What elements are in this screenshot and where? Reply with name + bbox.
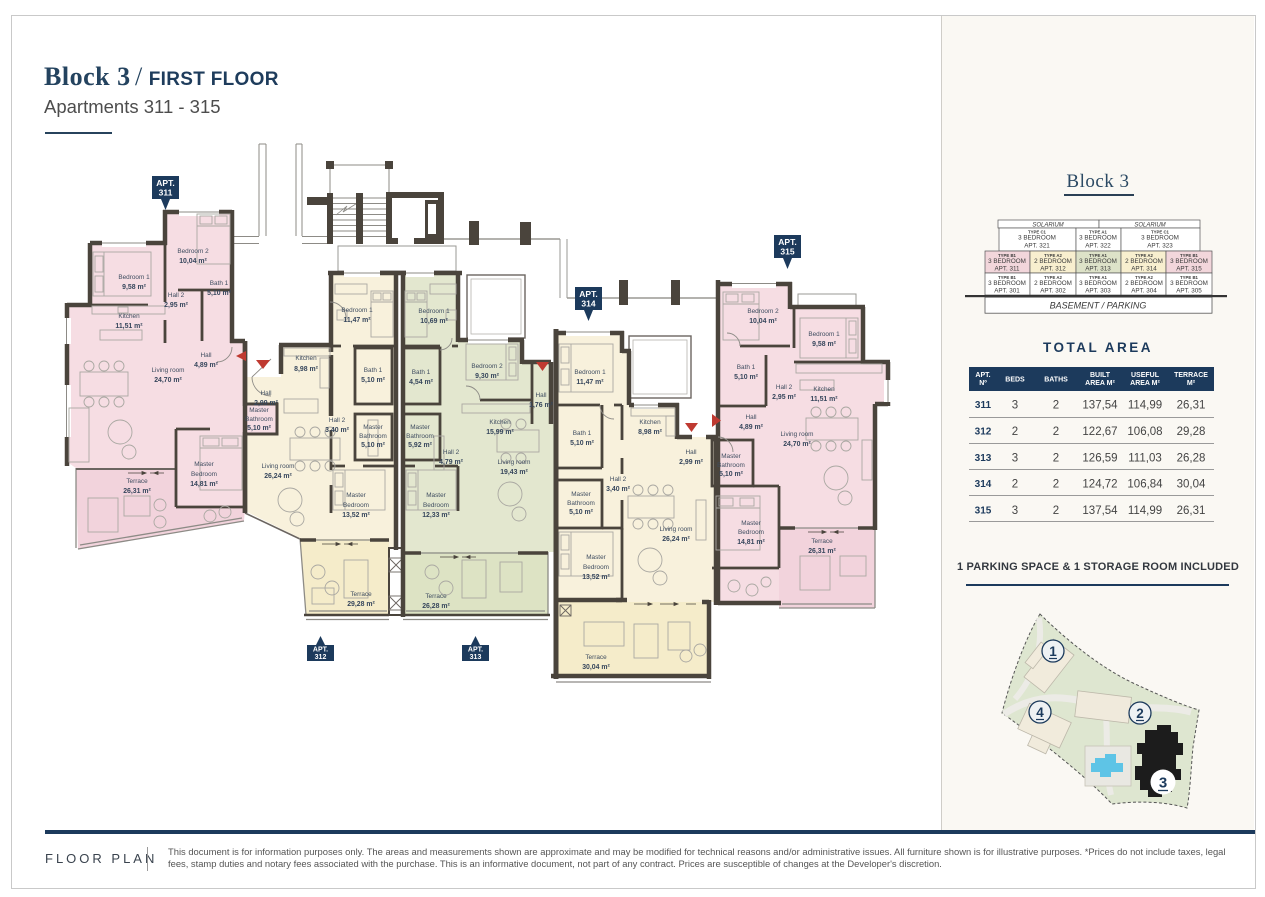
- svg-text:1,76 m²: 1,76 m²: [529, 402, 553, 409]
- svg-text:9,58 m²: 9,58 m²: [812, 341, 836, 348]
- svg-text:2 BEDROOM: 2 BEDROOM: [1034, 280, 1072, 287]
- svg-text:Living room: Living room: [261, 463, 294, 470]
- svg-text:3: 3: [1012, 400, 1018, 412]
- svg-text:TYPE B1: TYPE B1: [998, 253, 1017, 258]
- svg-text:4,79 m²: 4,79 m²: [439, 459, 463, 466]
- svg-text:3,40 m²: 3,40 m²: [325, 427, 349, 434]
- svg-text:APT. 305: APT. 305: [1176, 288, 1202, 295]
- svg-text:Hall 2: Hall 2: [776, 384, 793, 391]
- svg-text:Terrace: Terrace: [811, 538, 833, 545]
- svg-text:114,99: 114,99: [1128, 505, 1162, 517]
- svg-text:SOLARIUM: SOLARIUM: [1032, 223, 1063, 229]
- svg-text:8,98 m²: 8,98 m²: [294, 366, 318, 373]
- svg-text:TYPE B1: TYPE B1: [998, 275, 1017, 280]
- svg-text:Bathroom: Bathroom: [359, 433, 387, 440]
- svg-text:APT. 322: APT. 322: [1085, 243, 1111, 250]
- svg-text:26,31 m²: 26,31 m²: [808, 548, 836, 555]
- svg-text:2 BEDROOM: 2 BEDROOM: [1125, 258, 1163, 265]
- svg-text:Living room: Living room: [497, 459, 530, 466]
- svg-text:26,31 m²: 26,31 m²: [123, 488, 151, 495]
- svg-text:Master: Master: [721, 453, 741, 460]
- svg-text:4: 4: [1036, 705, 1044, 720]
- svg-text:TERRACE: TERRACE: [1174, 372, 1208, 379]
- svg-text:5,10 m²: 5,10 m²: [570, 440, 594, 447]
- svg-text:137,54: 137,54: [1082, 505, 1118, 517]
- svg-text:Bedroom: Bedroom: [423, 502, 449, 509]
- svg-text:11,47 m²: 11,47 m²: [343, 317, 371, 324]
- svg-text:2,99 m²: 2,99 m²: [679, 459, 703, 466]
- svg-text:Master: Master: [249, 407, 269, 414]
- svg-text:Living room: Living room: [780, 431, 813, 438]
- svg-text:APT.: APT.: [156, 178, 174, 188]
- svg-text:9,58 m²: 9,58 m²: [122, 284, 146, 291]
- svg-text:APT. 323: APT. 323: [1147, 243, 1173, 250]
- svg-text:8,98 m²: 8,98 m²: [638, 429, 662, 436]
- svg-text:5,92 m²: 5,92 m²: [408, 442, 432, 449]
- svg-text:15,99 m²: 15,99 m²: [486, 429, 514, 436]
- svg-text:APT.: APT.: [778, 237, 796, 247]
- svg-text:M²: M²: [1187, 380, 1196, 387]
- svg-text:Bedroom 1: Bedroom 1: [418, 308, 450, 315]
- svg-text:APT. 302: APT. 302: [1040, 288, 1066, 295]
- svg-text:2: 2: [1053, 426, 1059, 438]
- svg-text:Terrace: Terrace: [126, 478, 148, 485]
- svg-text:Bedroom 2: Bedroom 2: [471, 363, 503, 370]
- svg-text:3 BEDROOM: 3 BEDROOM: [1079, 235, 1117, 242]
- svg-text:Hall 2: Hall 2: [329, 417, 346, 424]
- svg-text:30,04 m²: 30,04 m²: [582, 664, 610, 671]
- svg-text:APT. 303: APT. 303: [1085, 288, 1111, 295]
- svg-text:30,04: 30,04: [1177, 479, 1206, 491]
- svg-text:2: 2: [1012, 479, 1018, 491]
- svg-text:106,84: 106,84: [1127, 479, 1163, 491]
- svg-text:Bath 1: Bath 1: [737, 364, 756, 371]
- svg-text:26,31: 26,31: [1177, 505, 1206, 517]
- svg-text:APT. 313: APT. 313: [1085, 266, 1111, 273]
- svg-text:TYPE A2: TYPE A2: [1044, 275, 1062, 280]
- svg-text:TYPE A2: TYPE A2: [1135, 253, 1153, 258]
- svg-text:3: 3: [1159, 775, 1167, 792]
- svg-text:BASEMENT / PARKING: BASEMENT / PARKING: [1050, 301, 1147, 311]
- svg-text:26,28: 26,28: [1177, 453, 1206, 465]
- svg-text:2: 2: [1053, 453, 1059, 465]
- svg-text:Bedroom 1: Bedroom 1: [574, 369, 606, 376]
- svg-text:Kitchen: Kitchen: [813, 386, 835, 393]
- svg-text:13,52 m²: 13,52 m²: [342, 512, 370, 519]
- svg-text:Terrace: Terrace: [350, 591, 372, 598]
- svg-text:10,04 m²: 10,04 m²: [749, 318, 777, 325]
- svg-text:2 BEDROOM: 2 BEDROOM: [1034, 258, 1072, 265]
- svg-text:Bath 1: Bath 1: [364, 367, 383, 374]
- svg-text:APT. 304: APT. 304: [1131, 288, 1157, 295]
- svg-text:3 BEDROOM: 3 BEDROOM: [1018, 235, 1056, 242]
- svg-text:Hall: Hall: [260, 390, 271, 397]
- svg-text:Bathroom: Bathroom: [717, 462, 745, 469]
- svg-text:26,24 m²: 26,24 m²: [264, 473, 292, 480]
- svg-text:9,30 m²: 9,30 m²: [475, 373, 499, 380]
- svg-text:26,28 m²: 26,28 m²: [422, 603, 450, 610]
- svg-text:APT. 315: APT. 315: [1176, 266, 1202, 273]
- svg-text:Kitchen: Kitchen: [295, 355, 317, 362]
- svg-text:Hall: Hall: [745, 414, 756, 421]
- svg-text:Bedroom 1: Bedroom 1: [118, 274, 150, 281]
- svg-text:Hall 2: Hall 2: [443, 449, 460, 456]
- svg-text:USEFUL: USEFUL: [1131, 372, 1160, 379]
- svg-text:APT.: APT.: [468, 647, 483, 654]
- svg-text:Master: Master: [346, 492, 366, 499]
- svg-text:Master: Master: [741, 520, 761, 527]
- svg-text:Kitchen: Kitchen: [639, 419, 661, 426]
- svg-text:2: 2: [1053, 479, 1059, 491]
- svg-text:TYPE A2: TYPE A2: [1044, 253, 1062, 258]
- svg-text:3 BEDROOM: 3 BEDROOM: [1170, 280, 1208, 287]
- svg-text:Bedroom 1: Bedroom 1: [341, 307, 373, 314]
- svg-text:Master: Master: [571, 491, 591, 498]
- svg-text:BATHS: BATHS: [1044, 377, 1068, 384]
- svg-text:11,51 m²: 11,51 m²: [810, 396, 838, 403]
- svg-text:TYPE A1: TYPE A1: [1089, 253, 1107, 258]
- svg-text:TYPE A1: TYPE A1: [1089, 230, 1107, 235]
- svg-text:114,99: 114,99: [1128, 400, 1162, 412]
- svg-text:Bath 1: Bath 1: [412, 369, 431, 376]
- svg-text:1: 1: [1049, 644, 1057, 659]
- svg-text:24,70 m²: 24,70 m²: [154, 377, 182, 384]
- svg-text:2: 2: [1053, 505, 1059, 517]
- svg-text:Living room: Living room: [151, 367, 184, 374]
- svg-text:APT. 312: APT. 312: [1040, 266, 1066, 273]
- svg-text:Nº: Nº: [979, 380, 987, 387]
- svg-text:313: 313: [470, 654, 482, 661]
- svg-text:5,10 m²: 5,10 m²: [734, 374, 758, 381]
- svg-text:BUILT: BUILT: [1090, 372, 1111, 379]
- svg-text:Bathroom: Bathroom: [406, 433, 434, 440]
- svg-text:Bedroom 2: Bedroom 2: [177, 248, 209, 255]
- svg-text:3 BEDROOM: 3 BEDROOM: [988, 258, 1026, 265]
- svg-text:4,54 m²: 4,54 m²: [409, 379, 433, 386]
- svg-text:2,95 m²: 2,95 m²: [772, 394, 796, 401]
- svg-text:APT. 321: APT. 321: [1024, 243, 1050, 250]
- svg-text:TYPE A1: TYPE A1: [1089, 275, 1107, 280]
- svg-text:Hall 2: Hall 2: [610, 476, 627, 483]
- svg-text:Bedroom: Bedroom: [738, 529, 764, 536]
- svg-text:122,67: 122,67: [1082, 426, 1117, 438]
- svg-text:3: 3: [1012, 453, 1018, 465]
- svg-text:26,31: 26,31: [1177, 400, 1206, 412]
- svg-text:3: 3: [1012, 505, 1018, 517]
- svg-text:APT. 301: APT. 301: [994, 288, 1020, 295]
- svg-text:2: 2: [1053, 400, 1059, 412]
- svg-text:TYPE B1: TYPE B1: [1180, 253, 1199, 258]
- svg-text:3 BEDROOM: 3 BEDROOM: [1079, 280, 1117, 287]
- svg-text:Master: Master: [363, 424, 383, 431]
- svg-text:Bedroom 2: Bedroom 2: [747, 308, 779, 315]
- svg-text:5,10 m²: 5,10 m²: [361, 442, 385, 449]
- svg-text:4,89 m²: 4,89 m²: [739, 424, 763, 431]
- svg-text:124,72: 124,72: [1082, 479, 1117, 491]
- svg-text:3 BEDROOM: 3 BEDROOM: [988, 280, 1026, 287]
- svg-text:TYPE A2: TYPE A2: [1135, 275, 1153, 280]
- svg-text:315: 315: [780, 247, 794, 257]
- svg-text:11,51 m²: 11,51 m²: [115, 323, 143, 330]
- svg-text:137,54: 137,54: [1082, 400, 1118, 412]
- svg-text:Bath 1: Bath 1: [573, 430, 592, 437]
- svg-text:311: 311: [975, 400, 992, 411]
- svg-text:APT.: APT.: [975, 372, 990, 379]
- svg-text:Kitchen: Kitchen: [489, 419, 511, 426]
- svg-text:311: 311: [159, 188, 173, 198]
- svg-text:29,28: 29,28: [1177, 426, 1206, 438]
- svg-text:Master: Master: [410, 424, 430, 431]
- svg-text:4,89 m²: 4,89 m²: [194, 362, 218, 369]
- svg-text:Master: Master: [586, 554, 606, 561]
- svg-text:Bath 1: Bath 1: [210, 280, 229, 287]
- svg-text:314: 314: [975, 479, 992, 490]
- svg-text:3,40 m²: 3,40 m²: [606, 486, 630, 493]
- svg-text:Living room: Living room: [659, 526, 692, 533]
- svg-text:2: 2: [1012, 426, 1018, 438]
- svg-text:Bathroom: Bathroom: [567, 500, 595, 507]
- svg-text:3 BEDROOM: 3 BEDROOM: [1141, 235, 1179, 242]
- svg-text:2,95 m²: 2,95 m²: [164, 302, 188, 309]
- svg-text:APT. 314: APT. 314: [1131, 266, 1157, 273]
- svg-text:TYPE C1: TYPE C1: [1151, 230, 1170, 235]
- svg-text:5,10 m²: 5,10 m²: [207, 290, 231, 297]
- svg-text:10,04 m²: 10,04 m²: [179, 258, 207, 265]
- svg-text:APT. 311: APT. 311: [994, 266, 1020, 273]
- svg-text:3 BEDROOM: 3 BEDROOM: [1079, 258, 1117, 265]
- svg-text:5,10 m²: 5,10 m²: [361, 377, 385, 384]
- svg-text:Bedroom: Bedroom: [191, 471, 217, 478]
- svg-text:Master: Master: [426, 492, 446, 499]
- svg-text:10,69 m²: 10,69 m²: [420, 318, 448, 325]
- svg-text:BEDS: BEDS: [1005, 377, 1025, 384]
- svg-text:3 BEDROOM: 3 BEDROOM: [1170, 258, 1208, 265]
- svg-text:Hall: Hall: [685, 449, 696, 456]
- svg-text:Terrace: Terrace: [585, 654, 607, 661]
- svg-text:Hall: Hall: [535, 392, 546, 399]
- svg-text:19,43 m²: 19,43 m²: [500, 469, 528, 476]
- svg-text:TYPE C1: TYPE C1: [1028, 230, 1047, 235]
- svg-text:314: 314: [581, 299, 595, 309]
- svg-text:AREA M²: AREA M²: [1085, 380, 1115, 387]
- svg-text:AREA M²: AREA M²: [1130, 380, 1160, 387]
- svg-text:Bedroom: Bedroom: [343, 502, 369, 509]
- svg-text:2 BEDROOM: 2 BEDROOM: [1125, 280, 1163, 287]
- svg-text:Master: Master: [194, 461, 214, 468]
- svg-text:313: 313: [975, 453, 992, 464]
- svg-text:14,81 m²: 14,81 m²: [190, 481, 218, 488]
- svg-text:5,10 m²: 5,10 m²: [719, 471, 743, 478]
- svg-text:APT.: APT.: [313, 647, 328, 654]
- svg-text:24,70 m²: 24,70 m²: [783, 441, 811, 448]
- svg-text:106,08: 106,08: [1127, 426, 1162, 438]
- svg-text:111,03: 111,03: [1128, 453, 1161, 465]
- svg-text:2,99 m²: 2,99 m²: [254, 400, 278, 407]
- svg-text:126,59: 126,59: [1082, 453, 1117, 465]
- svg-text:Bedroom: Bedroom: [583, 564, 609, 571]
- svg-text:Hall: Hall: [200, 352, 211, 359]
- svg-text:315: 315: [975, 506, 992, 517]
- svg-text:312: 312: [975, 427, 992, 438]
- svg-text:Terrace: Terrace: [425, 593, 447, 600]
- svg-text:SOLARIUM: SOLARIUM: [1134, 223, 1165, 229]
- svg-text:312: 312: [315, 654, 327, 661]
- svg-text:29,28 m²: 29,28 m²: [347, 601, 375, 608]
- svg-text:14,81 m²: 14,81 m²: [737, 539, 765, 546]
- svg-text:2: 2: [1136, 706, 1144, 721]
- svg-text:5,10 m²: 5,10 m²: [569, 509, 593, 516]
- svg-text:Bathroom: Bathroom: [245, 416, 273, 423]
- svg-text:Bedroom 1: Bedroom 1: [808, 331, 840, 338]
- svg-text:26,24 m²: 26,24 m²: [662, 536, 690, 543]
- svg-text:12,33 m²: 12,33 m²: [422, 512, 450, 519]
- svg-text:5,10 m²: 5,10 m²: [247, 425, 271, 432]
- svg-text:APT.: APT.: [579, 289, 597, 299]
- svg-text:Kitchen: Kitchen: [118, 313, 140, 320]
- svg-text:TYPE B1: TYPE B1: [1180, 275, 1199, 280]
- svg-text:13,52 m²: 13,52 m²: [582, 574, 610, 581]
- svg-text:Hall 2: Hall 2: [168, 292, 185, 299]
- svg-text:11,47 m²: 11,47 m²: [576, 379, 604, 386]
